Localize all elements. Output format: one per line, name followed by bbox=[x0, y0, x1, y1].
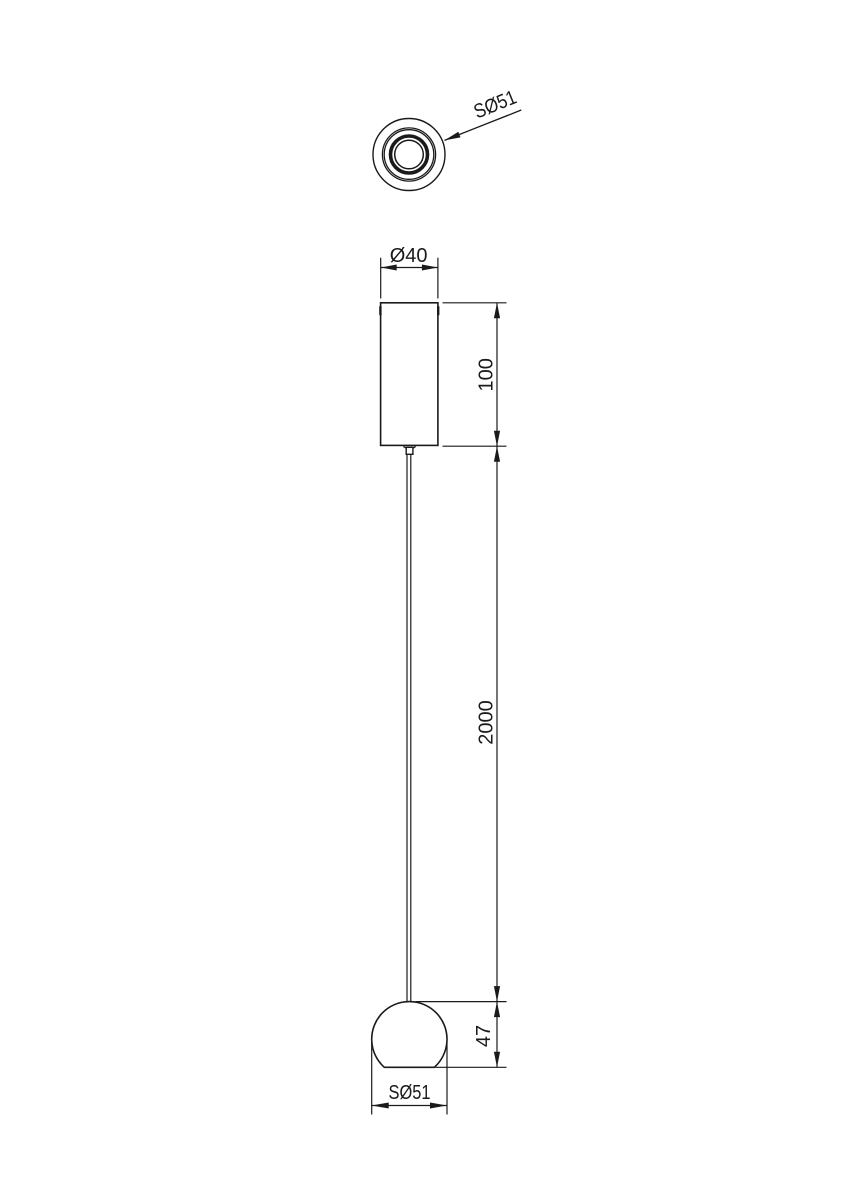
svg-text:100: 100 bbox=[476, 358, 498, 391]
svg-text:47: 47 bbox=[473, 1025, 495, 1047]
svg-text:Ø40: Ø40 bbox=[390, 245, 428, 267]
svg-text:2000: 2000 bbox=[476, 700, 498, 745]
svg-text:SØ51: SØ51 bbox=[389, 1082, 431, 1104]
svg-text:SØ51: SØ51 bbox=[471, 86, 520, 123]
